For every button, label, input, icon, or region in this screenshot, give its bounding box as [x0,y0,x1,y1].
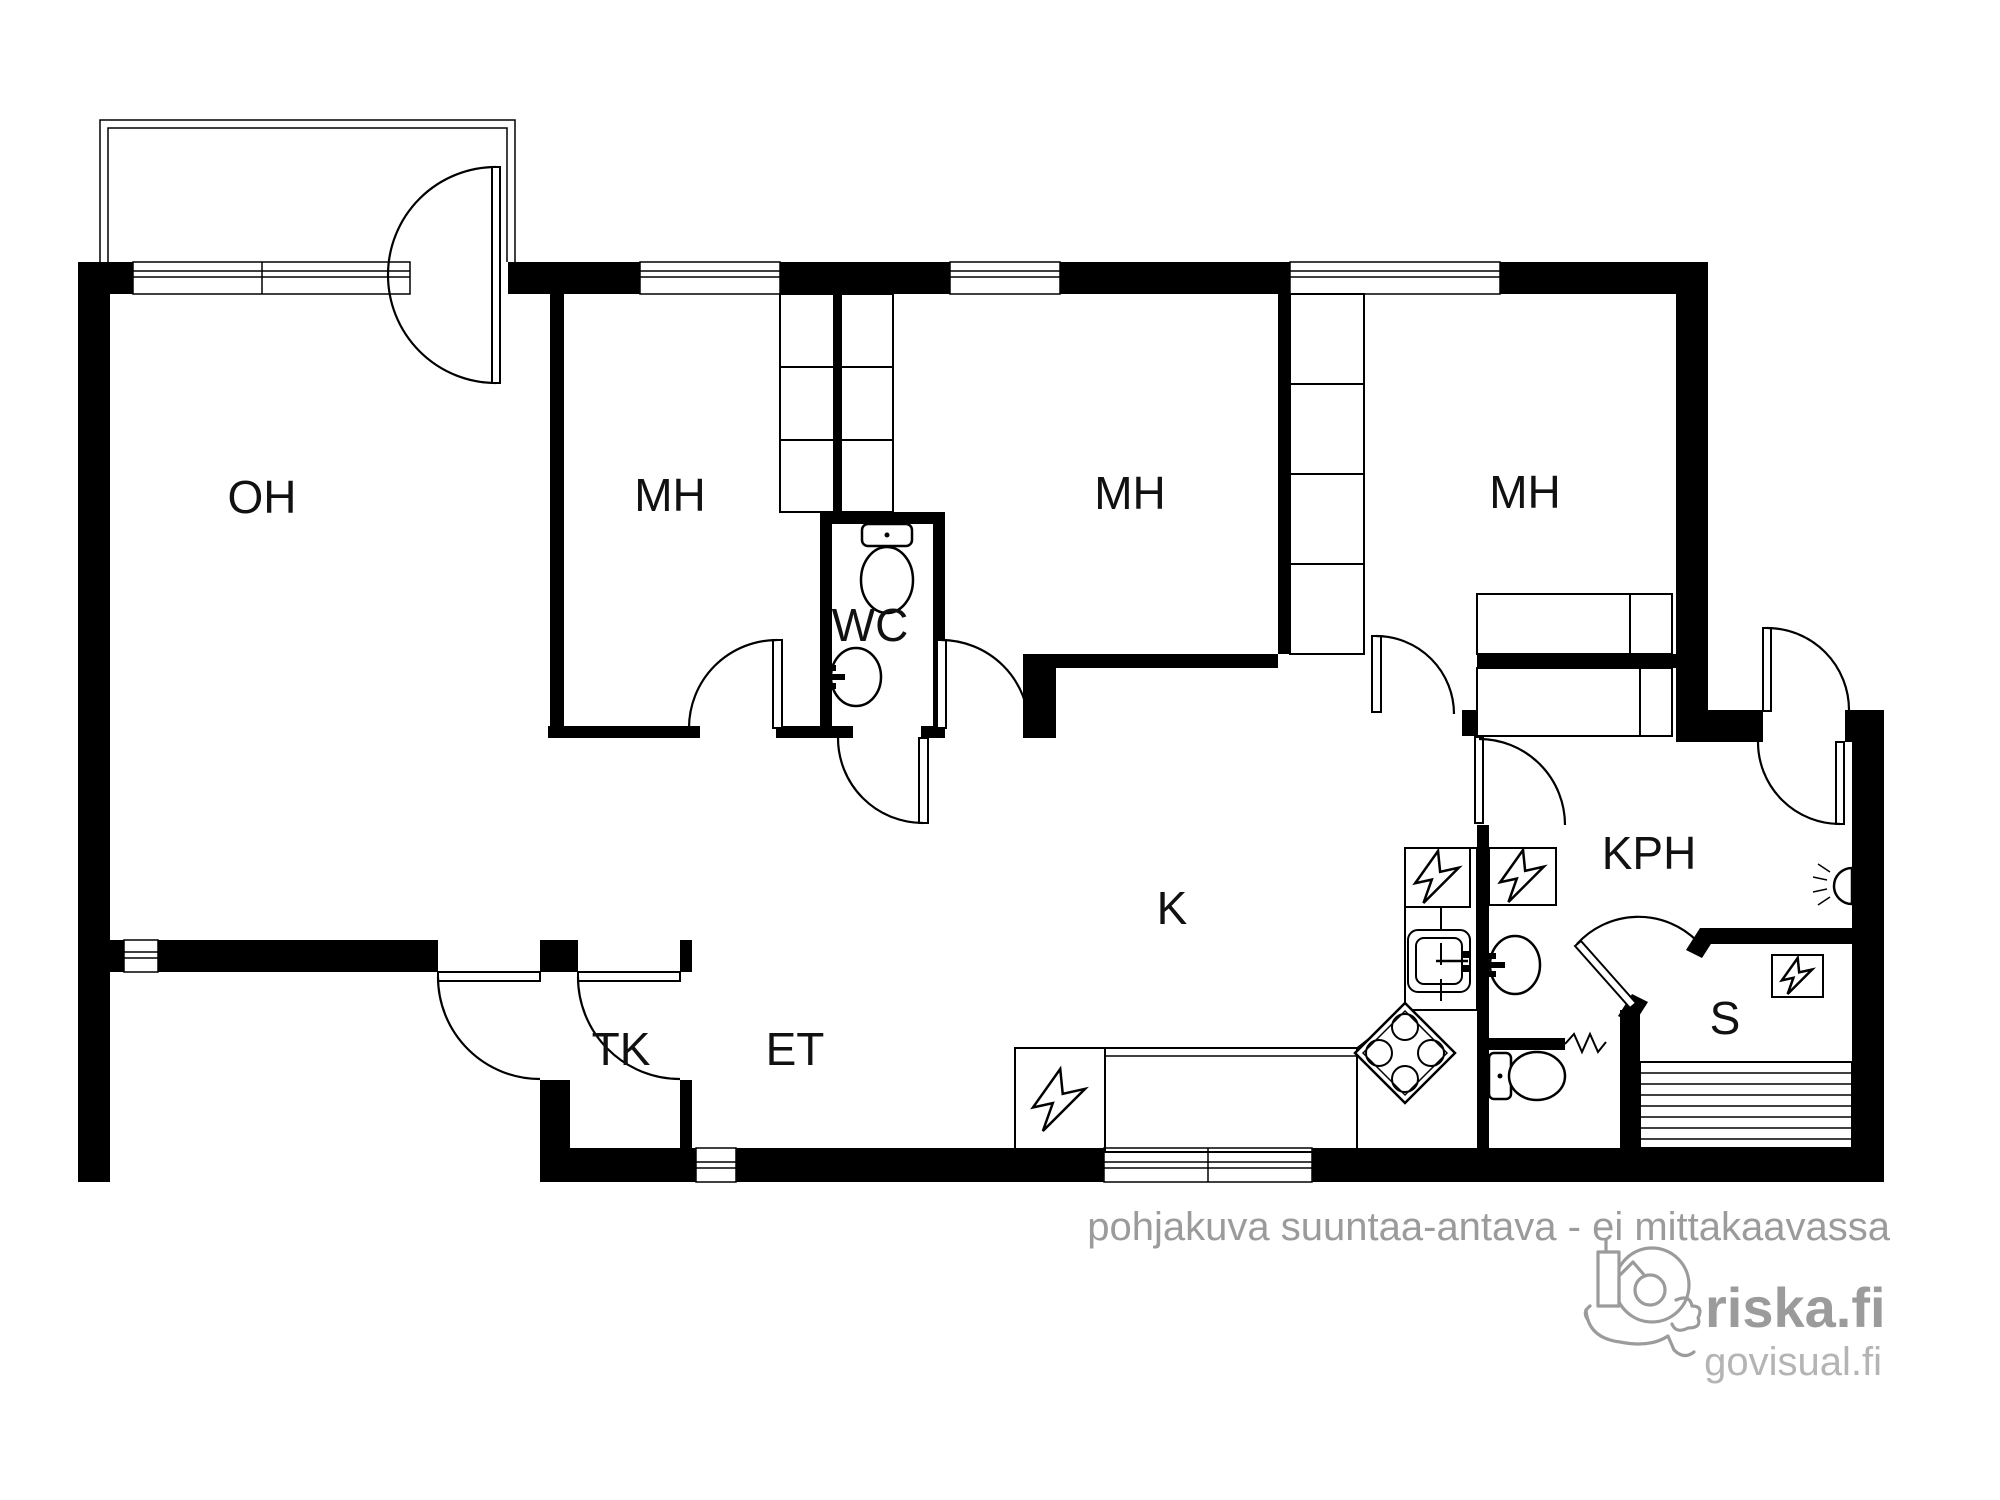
kitchen [1015,848,1477,1152]
room-label-kph: KPH [1602,827,1697,879]
mh1-door [689,640,782,728]
window-symbol [1104,1148,1312,1182]
room-label-et: ET [766,1023,825,1075]
wall-mh1-left [550,294,564,728]
wall-kph-stub [1489,1038,1565,1050]
wall-top [508,262,640,294]
front-door [438,972,540,1079]
room-label-mh-2: MH [1094,467,1166,519]
watermark-and-branding: pohjakuva suuntaa-antava - ei mittakaava… [1087,1205,1890,1384]
wall-bottom [1312,1148,1884,1182]
sauna-door [1575,917,1697,1008]
sauna-bench-icon [1640,1062,1852,1148]
wall-wc-left [820,512,832,738]
room-label-wc: WC [832,599,909,651]
wall-entrance [540,940,578,972]
wall-entrance [78,940,124,972]
walls [78,262,1884,1182]
appliance-lightning-icons [1033,850,1812,1131]
watermark-text: pohjakuva suuntaa-antava - ei mittakaava… [1087,1205,1890,1249]
exterior-back-door [1763,628,1849,711]
window-symbol [950,262,1060,294]
stove-icon [1355,1003,1455,1103]
counter-bottom [1105,1048,1357,1152]
wall-entrance [680,940,692,972]
room-label-k: K [1157,882,1188,934]
sink-icon [829,648,881,706]
room-label-mh-1: MH [634,469,706,521]
brand-site-text: riska.fi [1705,1276,1886,1339]
wall-left [78,262,110,1182]
wall-jog [1676,710,1763,742]
mh2-door [937,640,1029,728]
balcony-door [388,167,500,383]
wall-closet-divider [833,294,842,512]
window-symbol [1290,262,1500,294]
wall-sauna-west [1620,1010,1640,1150]
wc-door [838,738,928,823]
wall-wc-top [820,512,945,524]
appliance-lightning-icon [1033,1069,1085,1131]
heater-zigzag-icon [1565,1034,1606,1052]
wall-bottom [540,1148,696,1182]
kph-door [1475,737,1565,825]
window-symbol [124,940,158,972]
toilet-icon [1489,1052,1565,1100]
oven-box [1015,1048,1105,1152]
wall-mh2-closet [1278,294,1290,654]
wall-entrance [158,940,438,972]
wall-lamp-icon [1813,864,1852,905]
room-label-mh-3: MH [1489,466,1561,518]
wardrobe-cells [1290,294,1364,654]
room-label-oh: OH [228,471,297,523]
appliance-lightning-icon [1782,958,1812,994]
wall-right-lower [1852,710,1884,1182]
back-doorway-inner-door [1758,742,1844,824]
window-symbol [133,262,410,294]
floor-plan-drawing: OHMHMHMHWCKTKETKPHS pohjakuva suuntaa-an… [0,0,2000,1500]
wall-right-upper [1676,262,1708,722]
sink-icon [1408,930,1471,992]
floor-plan-page: OHMHMHMHWCKTKETKPHS pohjakuva suuntaa-an… [0,0,2000,1500]
window-symbol [696,1148,736,1182]
wall-mh2-bottom [1056,654,1278,668]
wall-tk-right [680,1080,692,1150]
wardrobe-cells [1477,594,1672,654]
riska-city-in-hand-logo-icon [1585,1240,1700,1356]
wardrobe-cells [1477,668,1672,736]
balcony-outline [100,120,515,262]
brand-subsite-text: govisual.fi [1704,1340,1882,1384]
wall-tk-left [540,1080,570,1150]
sink-icon [1489,936,1540,994]
wall-sauna-north [1700,928,1855,944]
wall-top [1060,262,1290,294]
wall-mh3-bottom [1477,654,1676,668]
appliance-lightning-icon [1500,850,1544,902]
wall-mh1-bottom [548,726,700,738]
mh3-door [1372,636,1454,714]
wall-top [780,262,950,294]
room-label-s: S [1710,992,1741,1044]
wall-mh3-door-stub [1462,710,1477,736]
window-symbol [640,262,780,294]
sauna [1640,955,1852,1148]
wall-kph-divider [1477,825,1489,1150]
wall-wc-bottom [820,726,853,738]
appliance-lightning-icon [1415,851,1459,903]
wall-bottom [736,1148,1104,1182]
room-label-tk: TK [592,1023,651,1075]
